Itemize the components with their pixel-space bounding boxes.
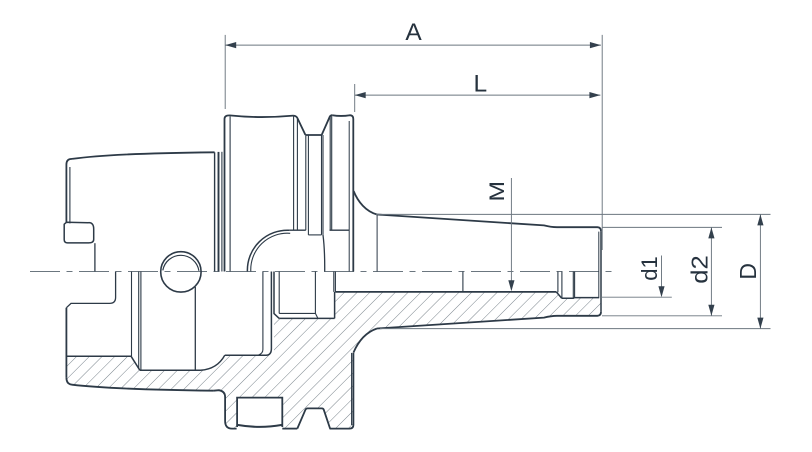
- svg-text:D: D: [735, 263, 761, 280]
- svg-text:d2: d2: [687, 255, 713, 284]
- svg-text:L: L: [473, 70, 487, 97]
- svg-text:d1: d1: [637, 256, 662, 280]
- svg-text:A: A: [405, 19, 422, 46]
- svg-text:M: M: [486, 181, 509, 202]
